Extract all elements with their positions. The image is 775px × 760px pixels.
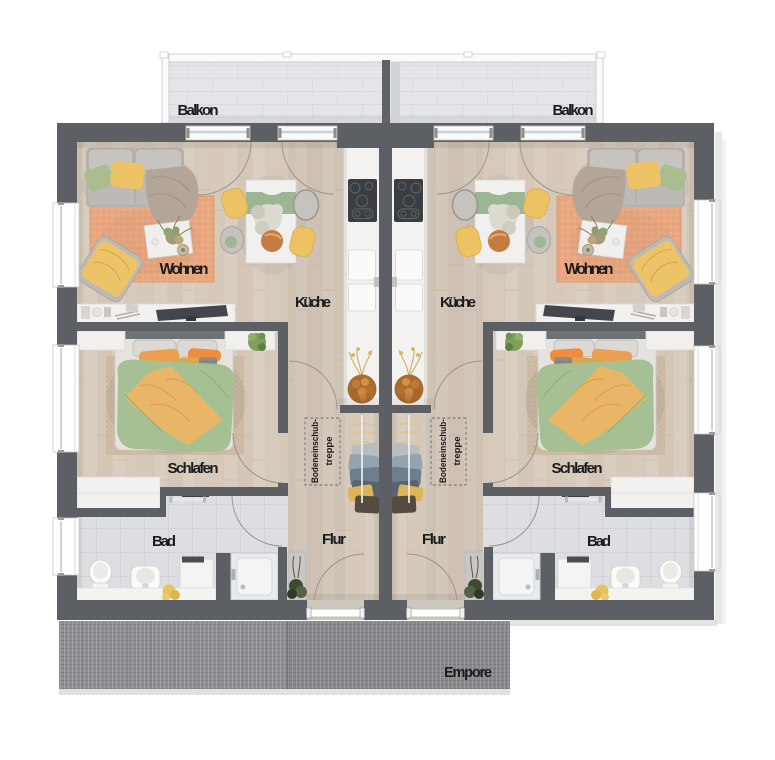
svg-text:Balkon: Balkon bbox=[178, 102, 219, 119]
svg-text:Küche: Küche bbox=[295, 294, 331, 311]
svg-text:Schlafen: Schlafen bbox=[168, 460, 219, 477]
svg-text:Empore: Empore bbox=[444, 665, 492, 681]
svg-text:Bodeneinschub-: Bodeneinschub- bbox=[438, 419, 449, 483]
svg-text:Bad: Bad bbox=[152, 533, 176, 550]
svg-text:Balkon: Balkon bbox=[553, 102, 594, 119]
svg-text:Wohnen: Wohnen bbox=[160, 261, 209, 278]
svg-text:treppe: treppe bbox=[452, 436, 463, 465]
svg-text:Flur: Flur bbox=[422, 531, 446, 548]
svg-text:Bodeneinschub-: Bodeneinschub- bbox=[310, 419, 321, 483]
svg-text:Schlafen: Schlafen bbox=[552, 460, 603, 477]
svg-text:Bad: Bad bbox=[587, 533, 611, 550]
svg-text:Wohnen: Wohnen bbox=[565, 261, 614, 278]
svg-text:treppe: treppe bbox=[324, 436, 335, 465]
svg-text:Flur: Flur bbox=[322, 531, 346, 548]
svg-text:Küche: Küche bbox=[440, 294, 476, 311]
